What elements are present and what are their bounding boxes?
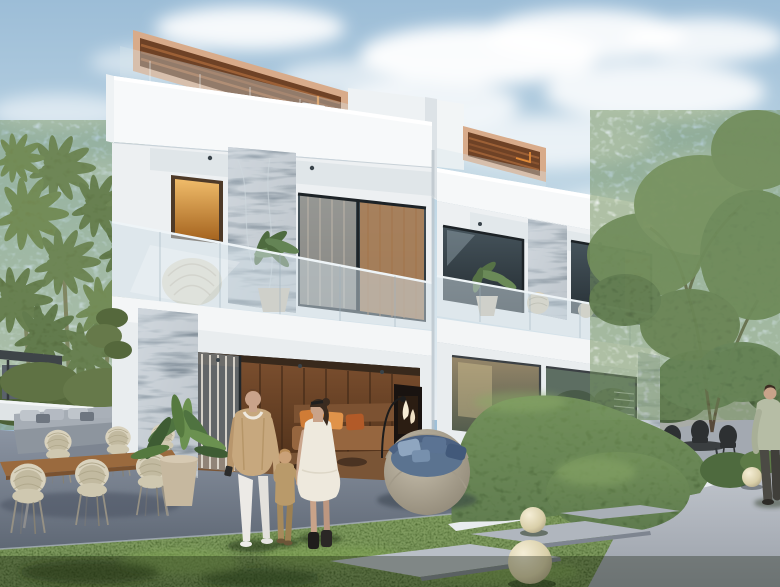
grass-vignette (0, 556, 780, 587)
rendering-stage (0, 0, 780, 587)
right-trees (587, 110, 780, 432)
villa-rendering (0, 0, 780, 587)
